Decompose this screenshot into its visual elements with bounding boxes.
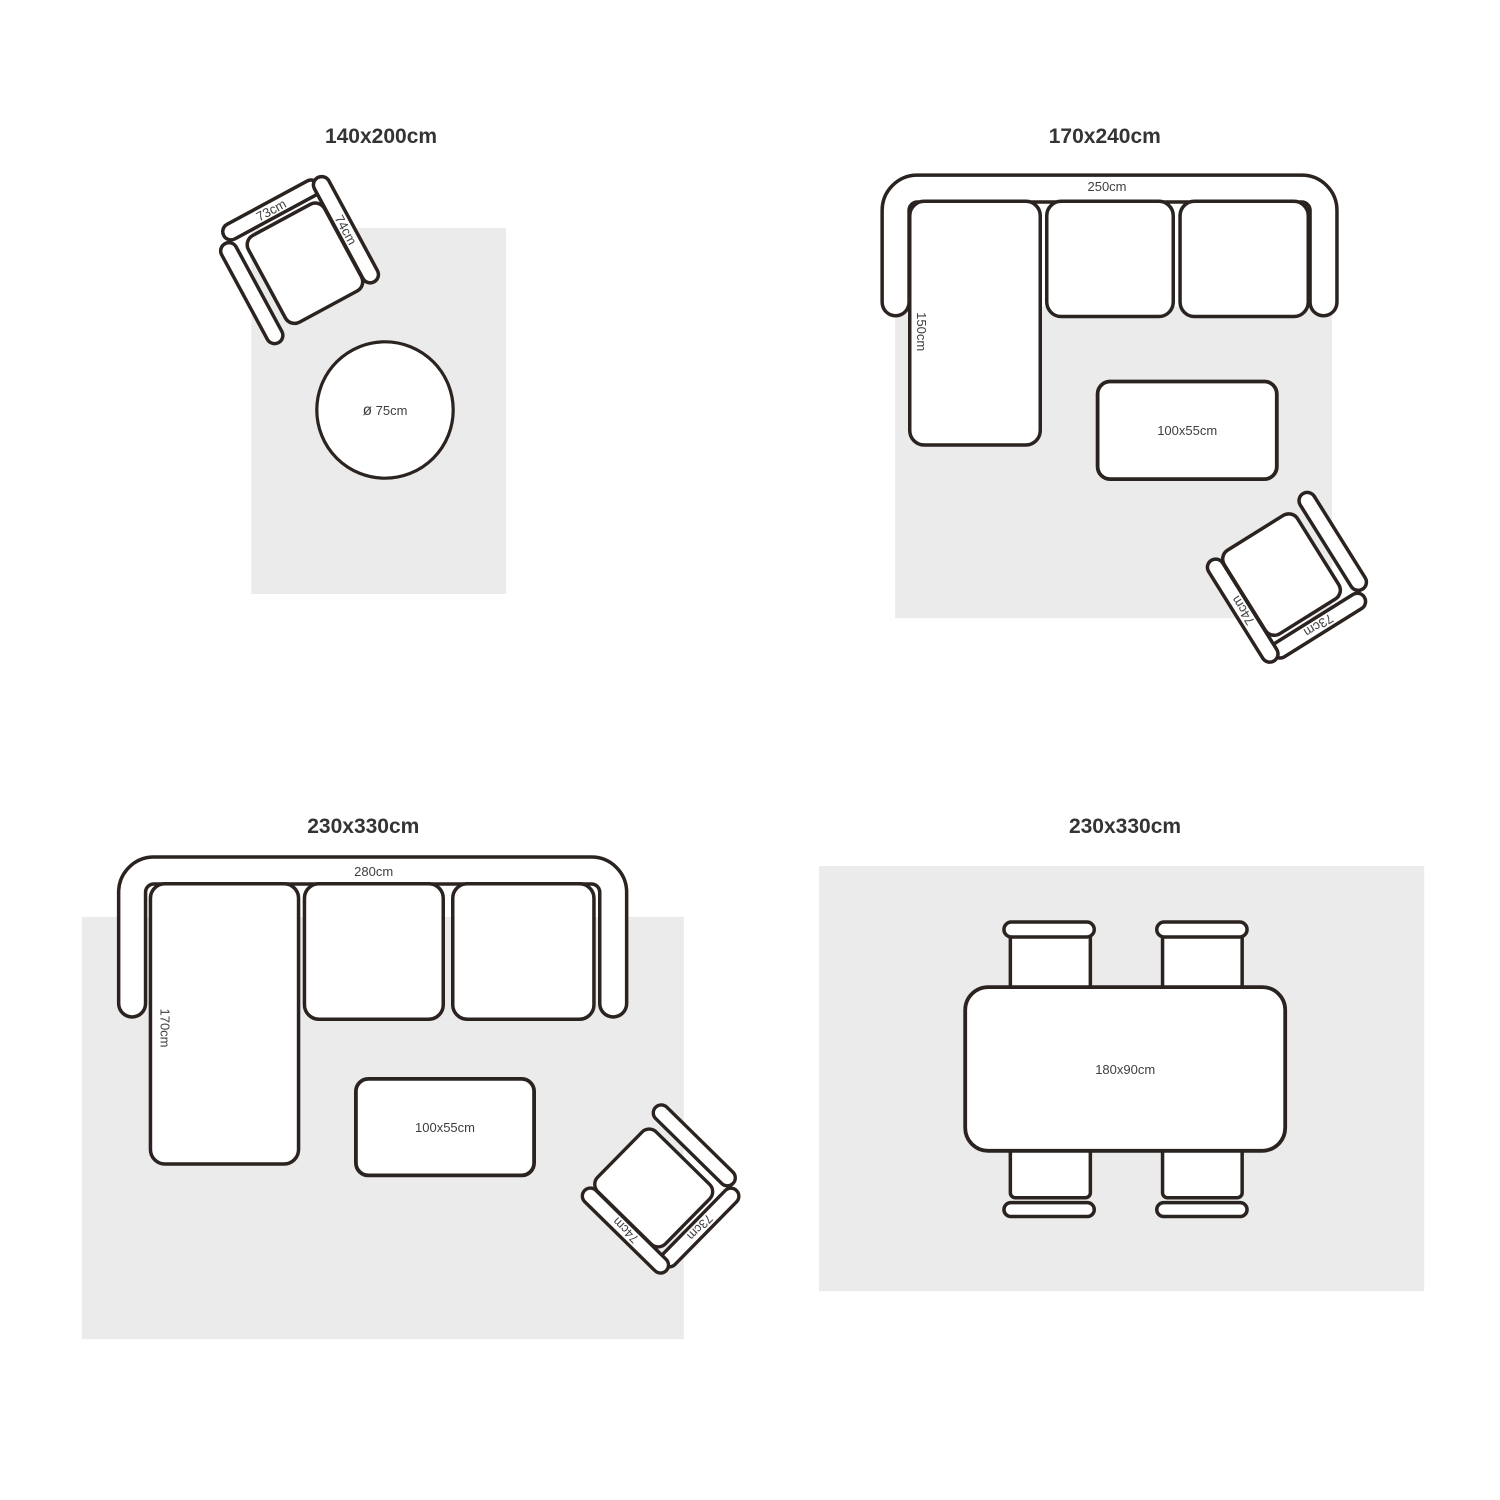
svg-text:100x55cm: 100x55cm: [415, 1120, 475, 1135]
svg-text:100x55cm: 100x55cm: [1157, 423, 1217, 438]
svg-text:ø 75cm: ø 75cm: [363, 402, 408, 419]
svg-text:250cm: 250cm: [1087, 179, 1126, 194]
svg-text:280cm: 280cm: [354, 864, 393, 879]
svg-text:170x240cm: 170x240cm: [1049, 125, 1161, 148]
svg-text:180x90cm: 180x90cm: [1095, 1062, 1155, 1077]
svg-text:170cm: 170cm: [158, 1008, 173, 1047]
svg-text:150cm: 150cm: [914, 312, 929, 351]
svg-text:140x200cm: 140x200cm: [325, 125, 437, 148]
svg-text:230x330cm: 230x330cm: [1069, 815, 1181, 838]
svg-text:230x330cm: 230x330cm: [307, 815, 419, 838]
